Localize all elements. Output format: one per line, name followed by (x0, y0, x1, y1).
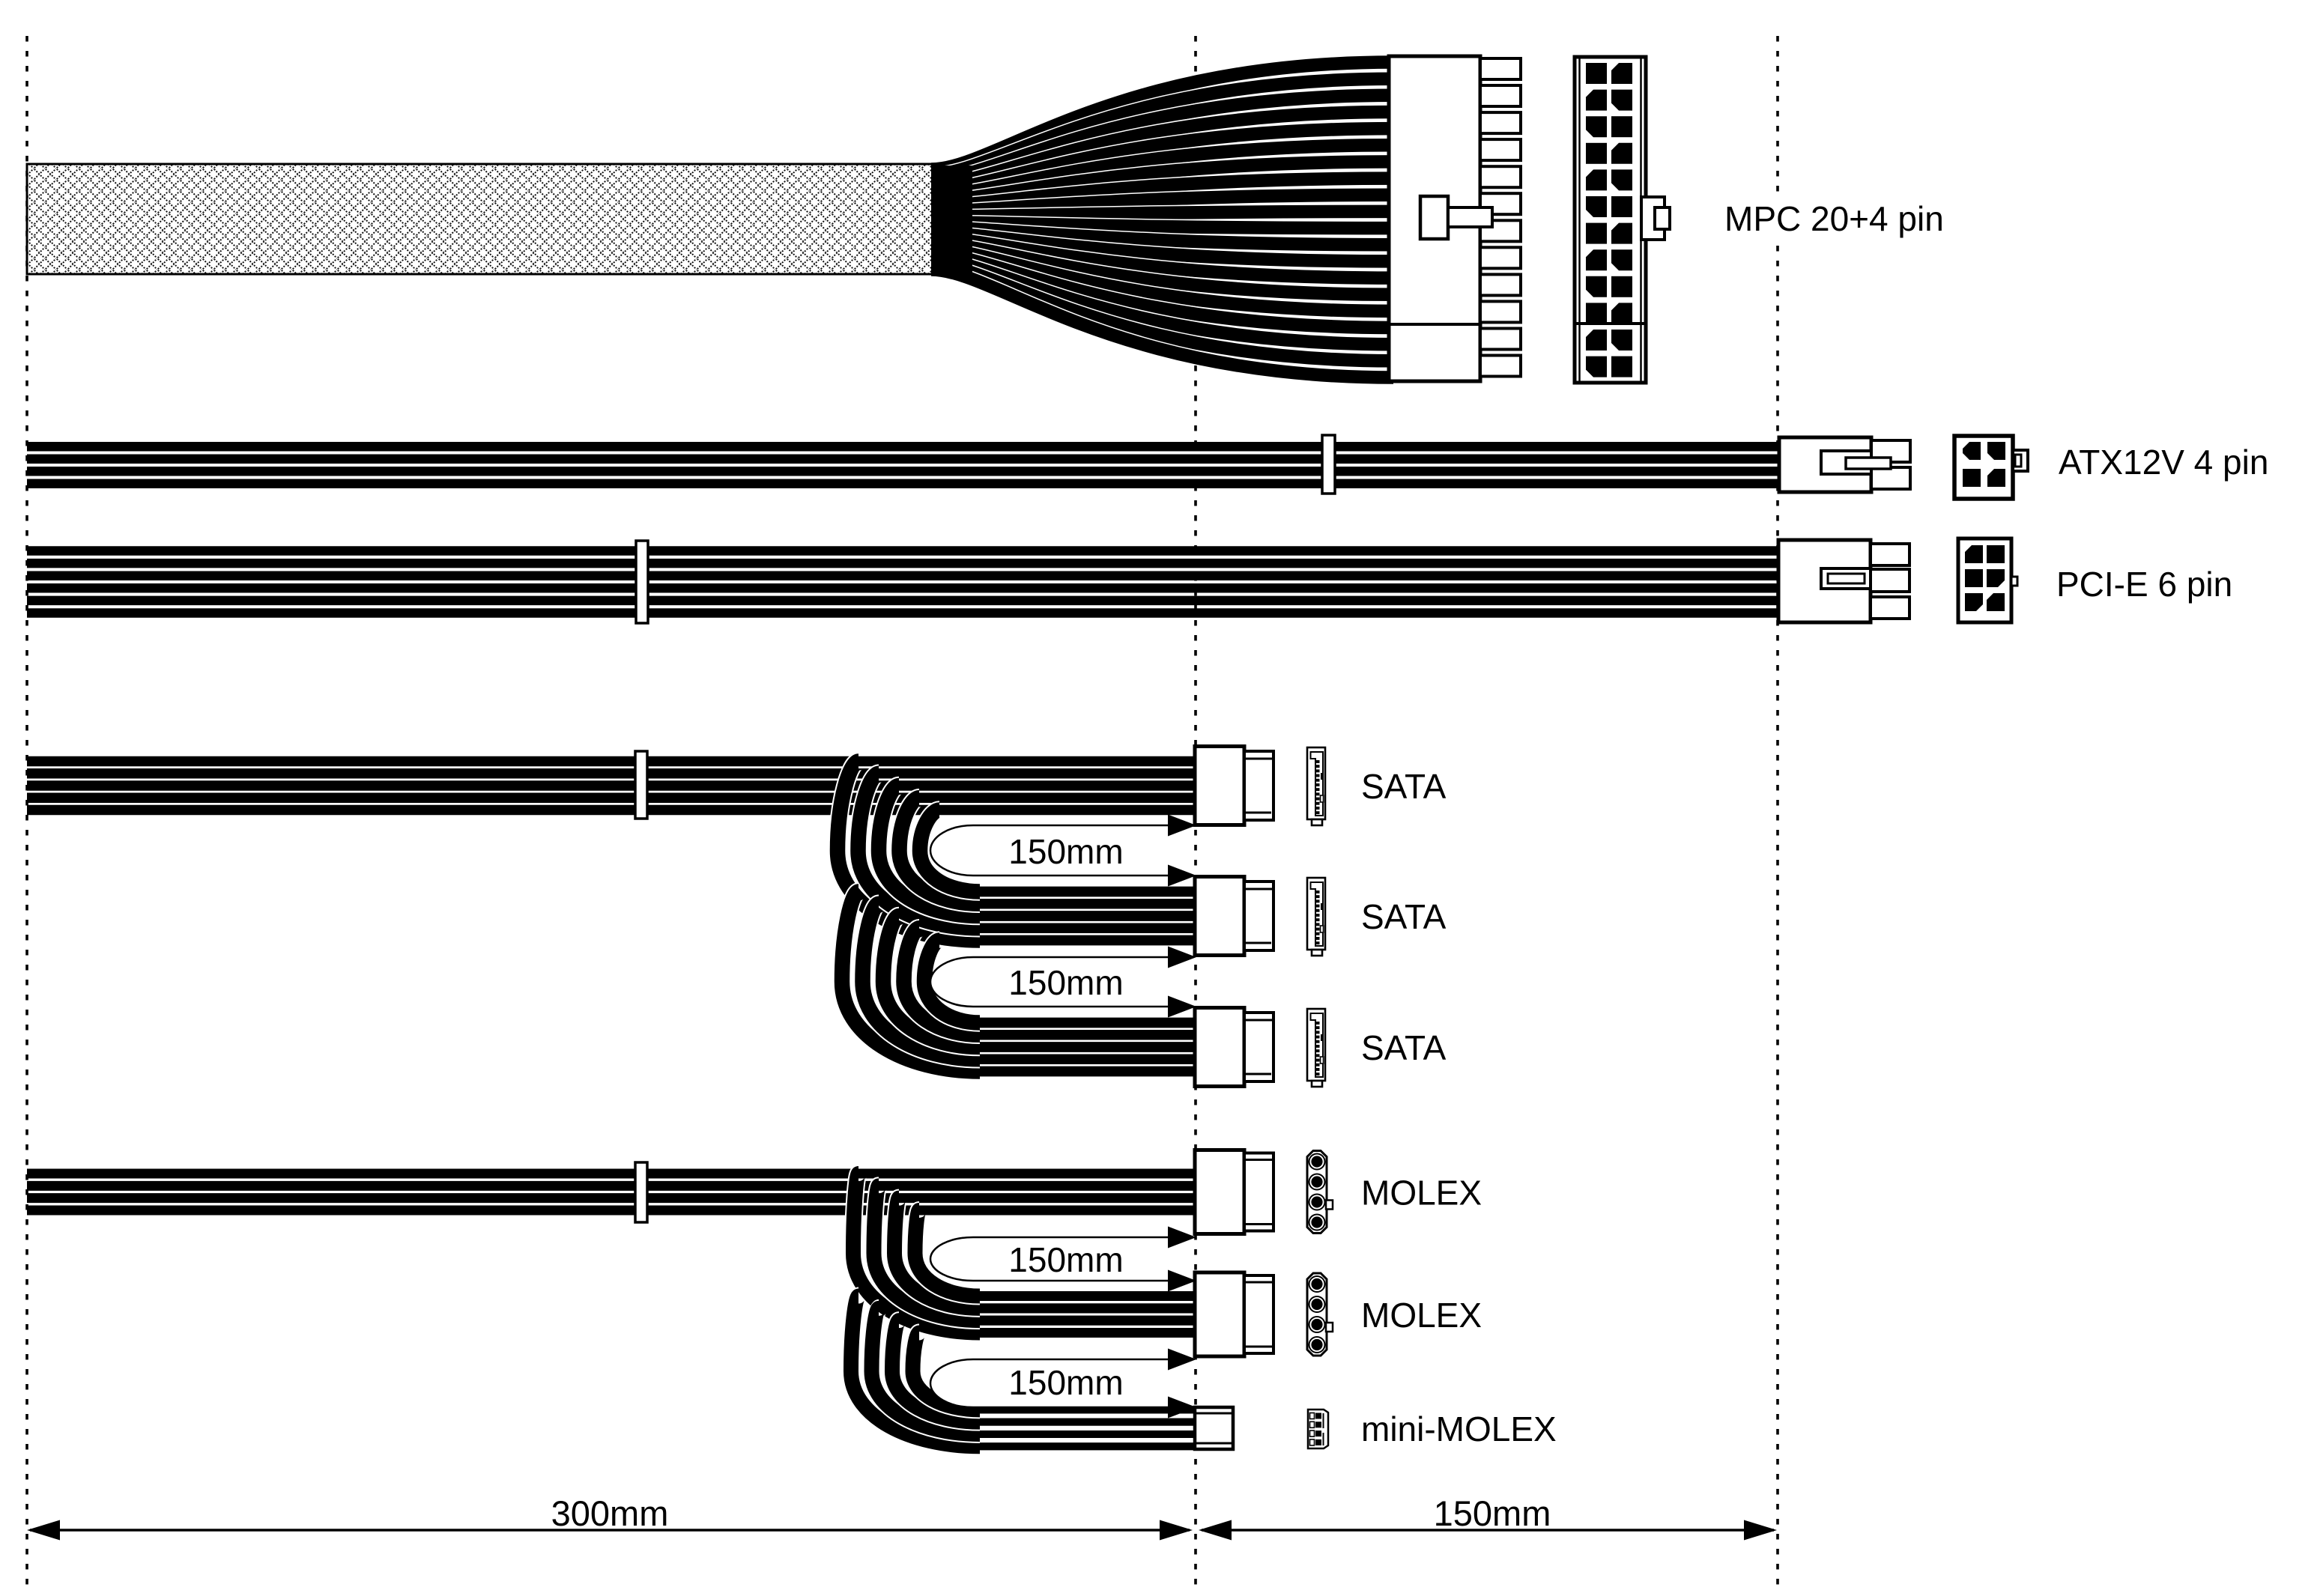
svg-text:150mm: 150mm (1008, 1240, 1123, 1279)
svg-text:150mm: 150mm (1008, 832, 1123, 871)
svg-text:SATA: SATA (1361, 1028, 1447, 1067)
svg-text:300mm: 300mm (551, 1493, 669, 1533)
svg-text:SATA: SATA (1361, 897, 1447, 936)
svg-text:SATA: SATA (1361, 767, 1447, 806)
svg-text:150mm: 150mm (1008, 963, 1123, 1002)
svg-text:MOLEX: MOLEX (1361, 1296, 1482, 1335)
svg-text:MPC 20+4 pin: MPC 20+4 pin (1724, 199, 1944, 238)
svg-text:MOLEX: MOLEX (1361, 1174, 1482, 1213)
svg-text:mini-MOLEX: mini-MOLEX (1361, 1410, 1557, 1448)
svg-text:150mm: 150mm (1434, 1493, 1551, 1533)
svg-text:PCI-E 6 pin: PCI-E 6 pin (2056, 565, 2232, 604)
svg-text:ATX12V 4 pin: ATX12V 4 pin (2059, 443, 2268, 482)
svg-text:150mm: 150mm (1008, 1363, 1123, 1402)
